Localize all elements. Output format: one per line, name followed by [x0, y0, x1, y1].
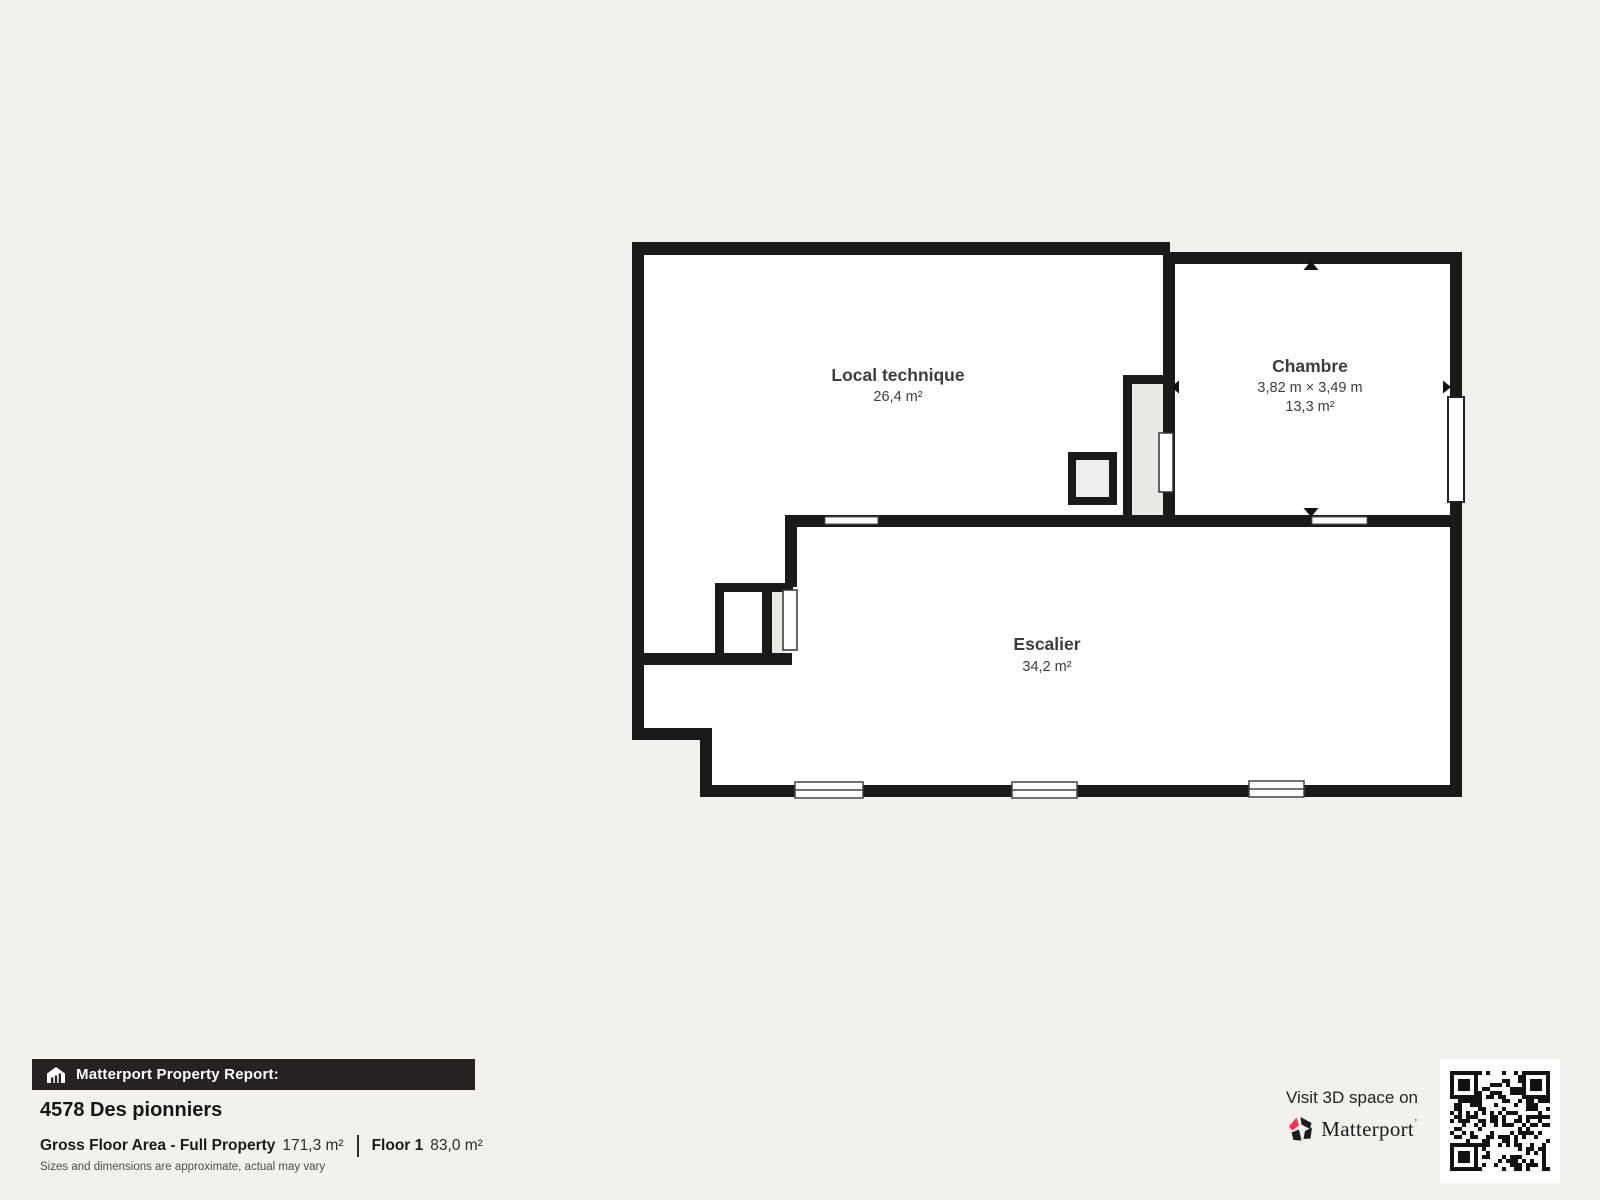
wall-room-divider [1163, 252, 1175, 383]
room-area-local-technique: 26,4 m² [873, 389, 922, 405]
wall-escalier-left [785, 515, 797, 587]
wall-stair-left [715, 583, 724, 665]
room-area-escalier: 34,2 m² [1022, 659, 1071, 675]
window-right-wall [1448, 397, 1464, 502]
door-chambre [1159, 433, 1173, 492]
visit-3d-space: Visit 3D space on Matterport’ [1258, 1088, 1446, 1143]
room-area-chambre: 13,3 m² [1285, 399, 1334, 415]
metrics-divider [357, 1135, 359, 1157]
wall-top-left-section [632, 242, 1170, 255]
gross-floor-area-label: Gross Floor Area - Full Property [40, 1137, 275, 1155]
report-title-bar: Matterport Property Report: [32, 1059, 475, 1090]
floor-label: Floor 1 [372, 1137, 424, 1155]
window-escalier-top [825, 517, 878, 524]
floor-value: 83,0 m² [430, 1137, 483, 1155]
property-address: 4578 Des pionniers [40, 1099, 222, 1122]
wall-left [632, 242, 644, 740]
wall-stair-top [715, 583, 793, 592]
door-stair [783, 590, 797, 650]
window-bottom-1 [795, 782, 863, 798]
matterport-wordmark: Matterport’ [1321, 1117, 1417, 1142]
room-label-local-technique: Local technique [831, 365, 964, 385]
brand-trademark: ’ [1414, 1118, 1418, 1129]
qr-code[interactable] [1440, 1059, 1560, 1183]
wall-stair-divider [762, 590, 772, 655]
house-report-icon [47, 1067, 65, 1083]
floor-area-metrics: Gross Floor Area - Full Property 171,3 m… [40, 1135, 483, 1157]
wall-localtech-bottom [632, 653, 792, 665]
property-report-page: Local technique 26,4 m² Chambre 3,82 m ×… [0, 0, 1600, 1200]
disclaimer-text: Sizes and dimensions are approximate, ac… [40, 1161, 325, 1173]
room-dims-chambre: 3,82 m × 3,49 m [1257, 380, 1362, 396]
wall-closet-left [1123, 375, 1132, 523]
report-title: Matterport Property Report: [76, 1066, 279, 1083]
window-bottom-3 [1249, 781, 1304, 797]
room-label-escalier: Escalier [1013, 634, 1080, 654]
visit-3d-text: Visit 3D space on [1258, 1088, 1446, 1108]
matterport-brand: Matterport’ [1258, 1115, 1446, 1143]
gross-floor-area-value: 171,3 m² [282, 1137, 343, 1155]
matterport-logo-icon [1286, 1115, 1314, 1143]
chimney [1068, 452, 1117, 505]
window-chambre-bottom [1312, 517, 1367, 524]
window-bottom-2 [1012, 782, 1077, 798]
wall-top-right-section [1163, 252, 1462, 264]
room-label-chambre: Chambre [1272, 356, 1348, 376]
floor-plan: Local technique 26,4 m² Chambre 3,82 m ×… [600, 220, 1500, 820]
